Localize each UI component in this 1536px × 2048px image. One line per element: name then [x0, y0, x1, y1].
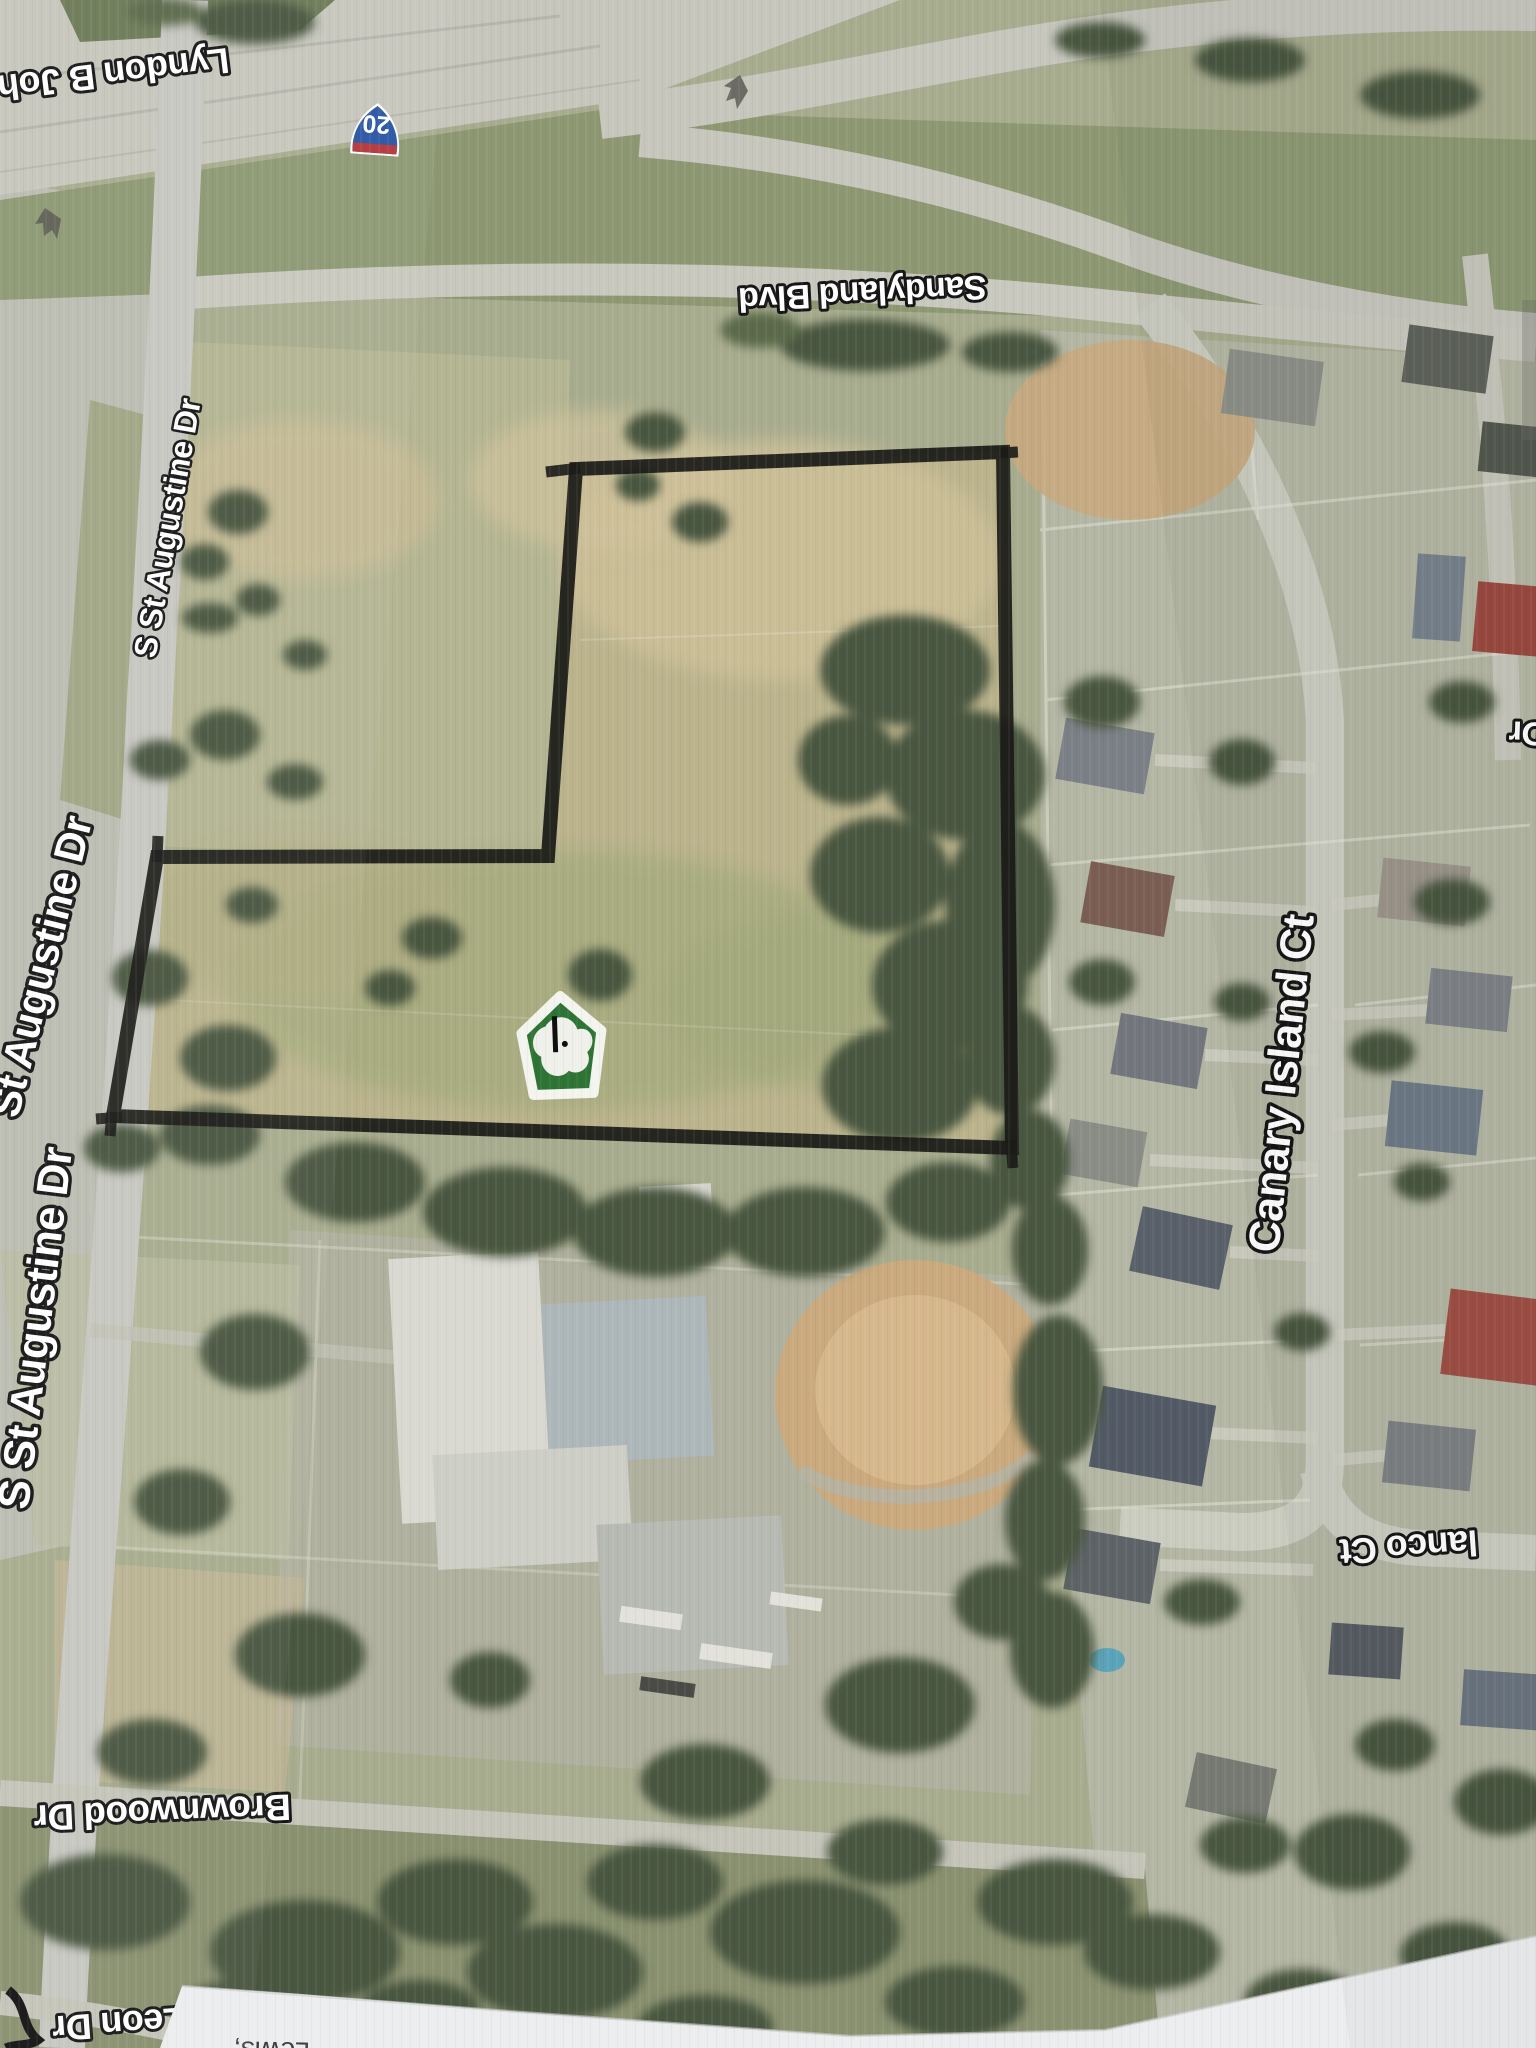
- aerial-photo: Lyndon B Joh 20 Sandyland Blvd S St Augu…: [0, 0, 1536, 2048]
- aerial-parcel-map-photo: Lyndon B Joh 20 Sandyland Blvd S St Augu…: [0, 0, 1536, 2048]
- photo-texture: [0, 0, 1536, 2048]
